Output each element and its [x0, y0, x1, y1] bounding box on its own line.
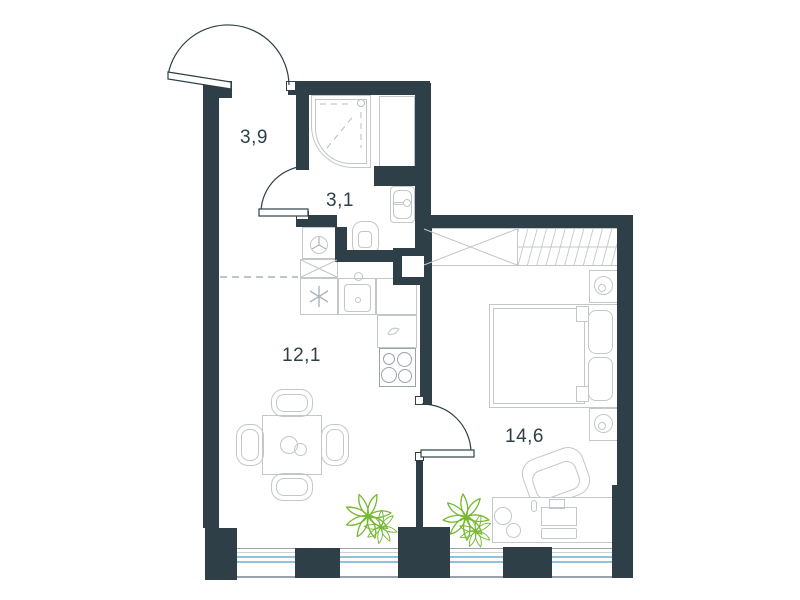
duct-shaft: [401, 255, 425, 278]
pen-icon: [531, 500, 537, 512]
burner-icon: [397, 352, 412, 367]
window-pillar: [503, 547, 552, 578]
floor-plan: 3,9 3,1 12,1 14,6: [0, 0, 800, 600]
wall-right-exterior: [617, 215, 633, 485]
room-area-label-bathroom: 3,1: [326, 190, 354, 212]
door-jamb: [296, 211, 309, 220]
wall-bedroom-top: [420, 215, 633, 228]
wall-bathroom-left: [296, 87, 309, 170]
dining-chair-seat: [326, 429, 344, 461]
plant-icon: [345, 493, 403, 549]
basin-faucet-icon: [403, 199, 411, 207]
window-pillar: [295, 548, 340, 578]
dining-chair-seat: [241, 429, 259, 461]
door-jamb: [286, 81, 296, 91]
dining-chair-seat: [276, 394, 308, 412]
pillow: [588, 310, 613, 354]
appliance-cabinet: [300, 278, 338, 315]
tall-cabinet: [300, 259, 338, 278]
kitchen-sink-drain: [355, 297, 361, 303]
washing-machine-drum: [310, 236, 328, 254]
mug-icon: [494, 507, 512, 525]
room-area-label-hallway: 3,9: [240, 127, 268, 149]
bed-mattress: [493, 308, 585, 404]
dining-chair-seat: [276, 478, 308, 496]
door-jamb: [415, 396, 424, 405]
room-area-label-bedroom: 14,6: [505, 426, 544, 448]
wall-bathroom: [374, 166, 417, 186]
laptop-keyboard: [541, 507, 577, 526]
wall-kitchen-bedroom: [416, 461, 423, 528]
laptop-trackpad: [541, 528, 577, 539]
blanket-fold: [576, 386, 589, 402]
wardrobe: [423, 228, 518, 266]
toilet-inner: [358, 231, 372, 248]
mug-icon: [506, 523, 521, 538]
burner-icon: [383, 353, 395, 365]
door-jamb: [415, 452, 424, 461]
window-pillar: [205, 528, 237, 580]
blanket-fold: [576, 306, 589, 322]
wall-left-exterior: [203, 83, 219, 528]
table-lamp-icon: [598, 422, 606, 430]
window-pillar: [398, 527, 450, 578]
wall-top-exterior: [288, 81, 430, 95]
plate-icon: [294, 443, 307, 456]
wardrobe-rail-section: [517, 228, 618, 266]
burner-icon: [381, 367, 397, 383]
pillow: [588, 357, 613, 401]
wall-right-exterior: [612, 485, 633, 578]
bathroom-door: [259, 166, 308, 216]
wall-bathroom-bottom: [335, 250, 397, 262]
kitchen-faucet-icon: [354, 272, 363, 281]
burner-icon: [398, 369, 412, 383]
bedroom-door: [421, 404, 474, 457]
table-lamp-icon: [598, 284, 606, 292]
counter-section: [377, 315, 417, 348]
entrance-door: [168, 25, 289, 89]
room-area-label-kitchen-living: 12,1: [282, 345, 321, 367]
